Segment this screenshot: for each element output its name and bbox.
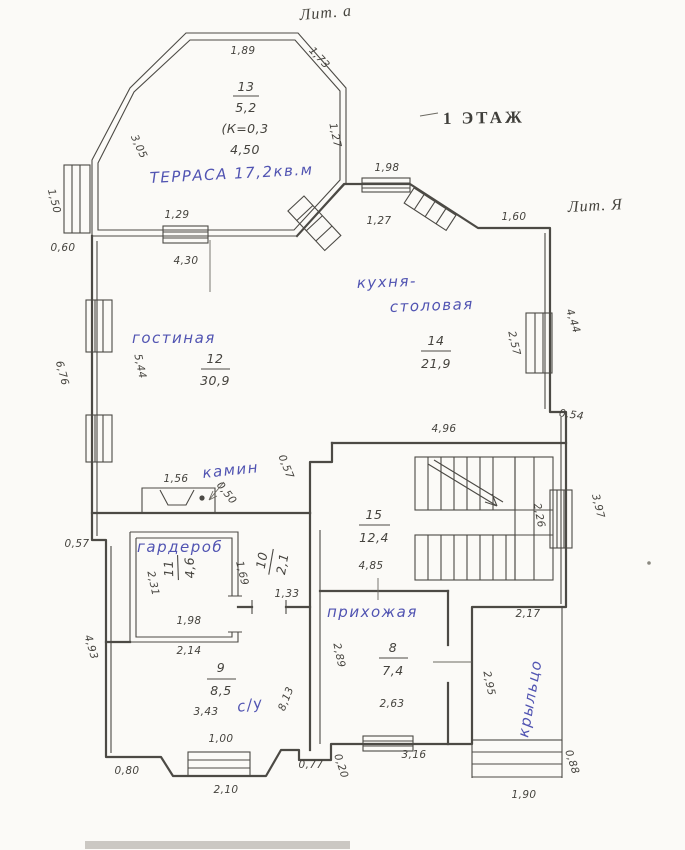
dim-kitchen-top-win-out: 1,98 [375, 162, 400, 174]
room-number: 9 [217, 660, 225, 675]
dim-stair-width: 4,96 [432, 423, 457, 435]
terrace-width: 4,50 [230, 142, 260, 157]
fraction-corridor: 10 2,1 [252, 546, 292, 578]
dim-wardrobe-width-out: 2,14 [177, 645, 202, 657]
dim-living-width: 4,30 [174, 255, 199, 267]
fireplace-icon [142, 482, 224, 513]
dim-bay-width: 2,10 [214, 784, 239, 796]
fraction-kitchen: 14 21,9 [421, 333, 451, 371]
dim-porch-top: 2,17 [516, 608, 541, 620]
dim-hall-width-in: 2,63 [380, 698, 405, 710]
terrace-outer-wall [92, 33, 346, 236]
dim-terrace-door: 1,29 [165, 209, 190, 221]
room-label-hall: прихожая [327, 603, 418, 621]
floor-stamp-label: 1 ЭТАЖ [443, 108, 525, 128]
dim-hall-width-out: 3,16 [402, 749, 427, 761]
dim-corridor-door: 1,33 [275, 588, 300, 600]
dim-bath-win: 1,00 [209, 733, 234, 745]
terrace-coef: (К=0,3 [221, 121, 268, 136]
dim-hall-left: 2,89 [330, 642, 347, 669]
dim-step-small: 0,77 [299, 759, 324, 771]
dim-bath-right: 8,13 [276, 685, 296, 713]
dim-kitchen-right-outer: 4,44 [563, 307, 582, 334]
room-area: 12,4 [359, 530, 389, 545]
room-label-bath: с/у [236, 694, 265, 716]
room-number: 13 [238, 79, 255, 94]
room-label-wardrobe: гардероб [137, 538, 223, 556]
room-number: 8 [389, 640, 397, 655]
dim-left-step: 0,57 [65, 538, 90, 550]
dim-right-step: 0,54 [558, 407, 584, 422]
room-label-kitchen-1: кухня- [357, 272, 418, 292]
fraction-bath: 9 8,5 [207, 660, 236, 698]
dim-wardrobe-width-in: 1,98 [177, 615, 202, 627]
terrace-steps-icon [288, 196, 341, 250]
fraction-terrace: 13 5,2 (К=0,3 4,50 [221, 79, 268, 157]
dim-terrace-right: 1,27 [326, 122, 343, 149]
dim-top-right: 1,60 [502, 211, 527, 223]
window-icon-living-left-1 [86, 300, 112, 352]
dim-kitchen-top-win-in: 1,27 [367, 215, 392, 227]
room-area: 21,9 [421, 356, 451, 371]
window-icon-left-wing [64, 165, 90, 233]
fraction-hall: 8 7,4 [379, 640, 408, 678]
scan-edge-strip [85, 841, 350, 849]
dim-left-lower: 4,93 [82, 634, 100, 661]
dim-bottom-left: 0,80 [115, 765, 140, 777]
dim-stair-win-in: 2,26 [531, 502, 548, 529]
room-area: 7,4 [382, 663, 403, 678]
dim-right-lower-outer: 3,97 [589, 493, 607, 520]
window-icon-kitchen-east [526, 313, 552, 373]
stair-west-upper-wall [310, 443, 332, 513]
room-label-porch: крыльцо [514, 658, 545, 739]
dim-porch-step: 0,88 [562, 748, 581, 775]
dim-wardrobe-height: 2,31 [144, 570, 161, 597]
walls [92, 33, 566, 776]
staircase-icon [415, 457, 553, 580]
room-number: 15 [366, 507, 383, 522]
window-icon-living-left-2 [86, 415, 112, 462]
floorplan-page: Лит. а 1 ЭТАЖ Лит. Я ТЕРРАСА 17,2кв.м го… [0, 0, 685, 850]
scan-speck [647, 561, 651, 565]
litera-top-label: Лит. а [298, 2, 353, 24]
room-number: 14 [428, 333, 445, 348]
room-label-living: гостиная [132, 329, 216, 347]
room-label-fireplace: камин [202, 458, 260, 482]
room-label-terrace: ТЕРРАСА 17,2кв.м [149, 160, 314, 187]
fraction-stair: 15 12,4 [359, 507, 390, 545]
dim-left-outer: 6,76 [53, 360, 71, 387]
dim-porch-left: 2,95 [480, 670, 497, 697]
fraction-living: 12 30,9 [200, 351, 230, 388]
dim-terrace-top: 1,89 [231, 45, 256, 57]
window-icon-bay [188, 752, 250, 776]
dim-kitchen-win-in: 2,57 [505, 330, 522, 357]
corridor-door-jambs [252, 600, 286, 614]
room-number: 12 [207, 351, 224, 366]
wardrobe-door-jambs [228, 596, 242, 632]
room-area: 2,1 [273, 552, 291, 576]
dim-step-tiny: 0,20 [331, 752, 350, 779]
room-number: 11 [161, 560, 177, 577]
room-area: 30,9 [200, 373, 230, 388]
dim-fire-diag: 0,50 [214, 480, 239, 507]
room-area: 5,2 [235, 100, 256, 115]
dim-terrace-diag-left: 3,05 [128, 133, 149, 161]
fraction-wardrobe: 11 4,6 [161, 554, 198, 580]
dim-porch-width: 1,90 [512, 789, 537, 801]
dim-fire-right: 0,57 [276, 453, 296, 481]
dim-wing-offset: 0,60 [51, 242, 76, 254]
room-area: 4,6 [182, 557, 198, 579]
floorplan-canvas: Лит. а 1 ЭТАЖ Лит. Я ТЕРРАСА 17,2кв.м го… [0, 0, 685, 850]
room-label-kitchen-2: столовая [390, 295, 475, 316]
stair-direction-arrow-icon [428, 460, 503, 506]
dim-living-height: 5,44 [131, 353, 148, 380]
room-number: 10 [253, 551, 271, 570]
dim-fire-left: 1,56 [164, 473, 189, 485]
dim-corridor-height: 1,69 [233, 560, 251, 587]
dim-stair-bottom: 4,85 [359, 560, 384, 572]
window-icon-terrace-door [163, 226, 208, 243]
dim-bath-width: 3,43 [194, 706, 219, 718]
pen-dash-mark [420, 113, 438, 116]
room-area: 8,5 [210, 683, 231, 698]
litera-right-label: Лит. Я [566, 196, 623, 216]
dim-wing-left: 1,50 [45, 188, 63, 215]
